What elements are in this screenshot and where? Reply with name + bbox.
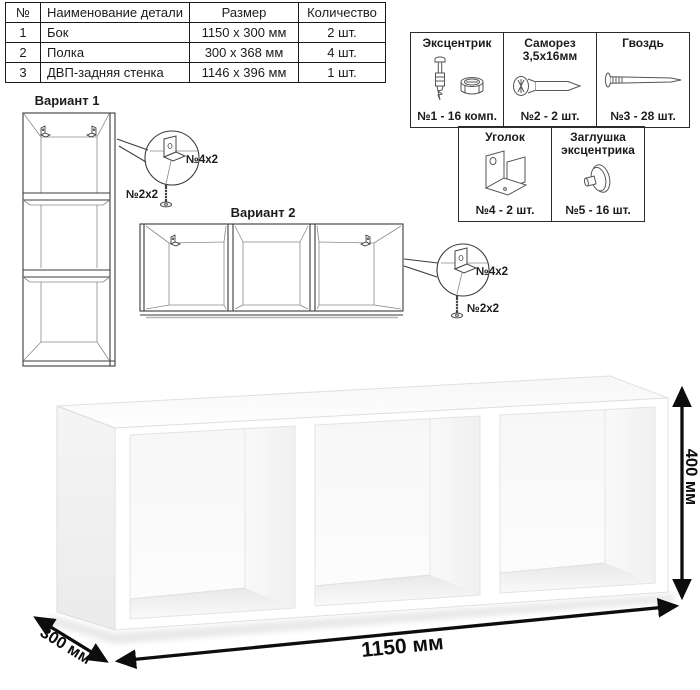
hardware-cell-nail: Гвоздь №3 - 28 шт.: [597, 33, 690, 128]
screw-glyph: [452, 295, 463, 318]
hardware-cell-cam: Эксцентрик: [411, 33, 504, 128]
bracket-mark: [171, 235, 180, 246]
hardware-cell-screw: Саморез 3,5х16мм: [504, 33, 597, 128]
dimension-height-label: 400 мм: [682, 449, 700, 506]
shelf-body: [50, 376, 674, 644]
part-qty: 4 шт.: [299, 43, 386, 63]
part-qty: 1 шт.: [299, 63, 386, 83]
variant2-callout: №4х2 №2х2: [404, 244, 508, 318]
variant2-title: Вариант 2: [231, 205, 296, 220]
part-num: 3: [6, 63, 41, 83]
part-num: 2: [6, 43, 41, 63]
variant2-drawing: Вариант 2: [135, 200, 555, 330]
part-name: ДВП-задняя стенка: [41, 63, 190, 83]
part-size: 1150 х 300 мм: [190, 23, 299, 43]
shelf-3d-render: 1150 мм 400 мм 300 мм: [0, 370, 700, 690]
corner-bracket-icon: [474, 144, 536, 203]
table-row: 2 Полка 300 х 368 мм 4 шт.: [6, 43, 386, 63]
assembly-instruction-page: № Наименование детали Размер Количество …: [0, 0, 700, 690]
hardware-title: Саморез: [524, 33, 576, 50]
cam-cover-icon: [577, 157, 619, 203]
part-size: 300 х 368 мм: [190, 43, 299, 63]
variant1-callout: №4х2 №2х2: [117, 131, 218, 207]
bracket-mark: [87, 126, 96, 137]
hardware-count: №3 - 28 шт.: [610, 109, 676, 127]
bracket-mark: [361, 235, 370, 246]
hardware-title2: 3,5х16мм: [523, 50, 577, 63]
table-row: 1 Бок 1150 х 300 мм 2 шт.: [6, 23, 386, 43]
parts-table-header-row: № Наименование детали Размер Количество: [6, 3, 386, 23]
col-header-num: №: [6, 3, 41, 23]
col-header-name: Наименование детали: [41, 3, 190, 23]
hardware-title: Заглушка: [570, 127, 626, 144]
callout-bracket-label: №4х2: [186, 154, 218, 166]
nail-icon: [601, 50, 685, 109]
variant1-cabinet: [23, 113, 115, 366]
table-row: 3 ДВП-задняя стенка 1146 х 396 мм 1 шт.: [6, 63, 386, 83]
part-num: 1: [6, 23, 41, 43]
hardware-box-row1: Эксцентрик: [410, 32, 690, 128]
hardware-title: Уголок: [485, 127, 525, 144]
col-header-qty: Количество: [299, 3, 386, 23]
hardware-count: №5 - 16 шт.: [565, 203, 631, 221]
hardware-title2: эксцентрика: [561, 144, 635, 157]
hardware-cell-cover: Заглушка эксцентрика №5 - 16 шт.: [552, 127, 645, 222]
col-header-size: Размер: [190, 3, 299, 23]
cam-bolt-icon: [417, 50, 497, 109]
part-size: 1146 х 396 мм: [190, 63, 299, 83]
part-name: Полка: [41, 43, 190, 63]
hardware-title: Гвоздь: [622, 33, 664, 50]
screw-icon: [510, 63, 590, 109]
parts-table: № Наименование детали Размер Количество …: [5, 2, 386, 83]
part-qty: 2 шт.: [299, 23, 386, 43]
variant2-cabinet: [140, 224, 403, 318]
callout-screw-label: №2х2: [467, 303, 499, 315]
hardware-title: Эксцентрик: [423, 33, 492, 50]
variant1-title: Вариант 1: [35, 93, 100, 108]
hardware-count: №2 - 2 шт.: [521, 109, 580, 127]
hardware-count: №1 - 16 комп.: [417, 109, 497, 127]
part-name: Бок: [41, 23, 190, 43]
bracket-mark: [41, 126, 50, 137]
callout-bracket-label: №4х2: [476, 266, 508, 278]
